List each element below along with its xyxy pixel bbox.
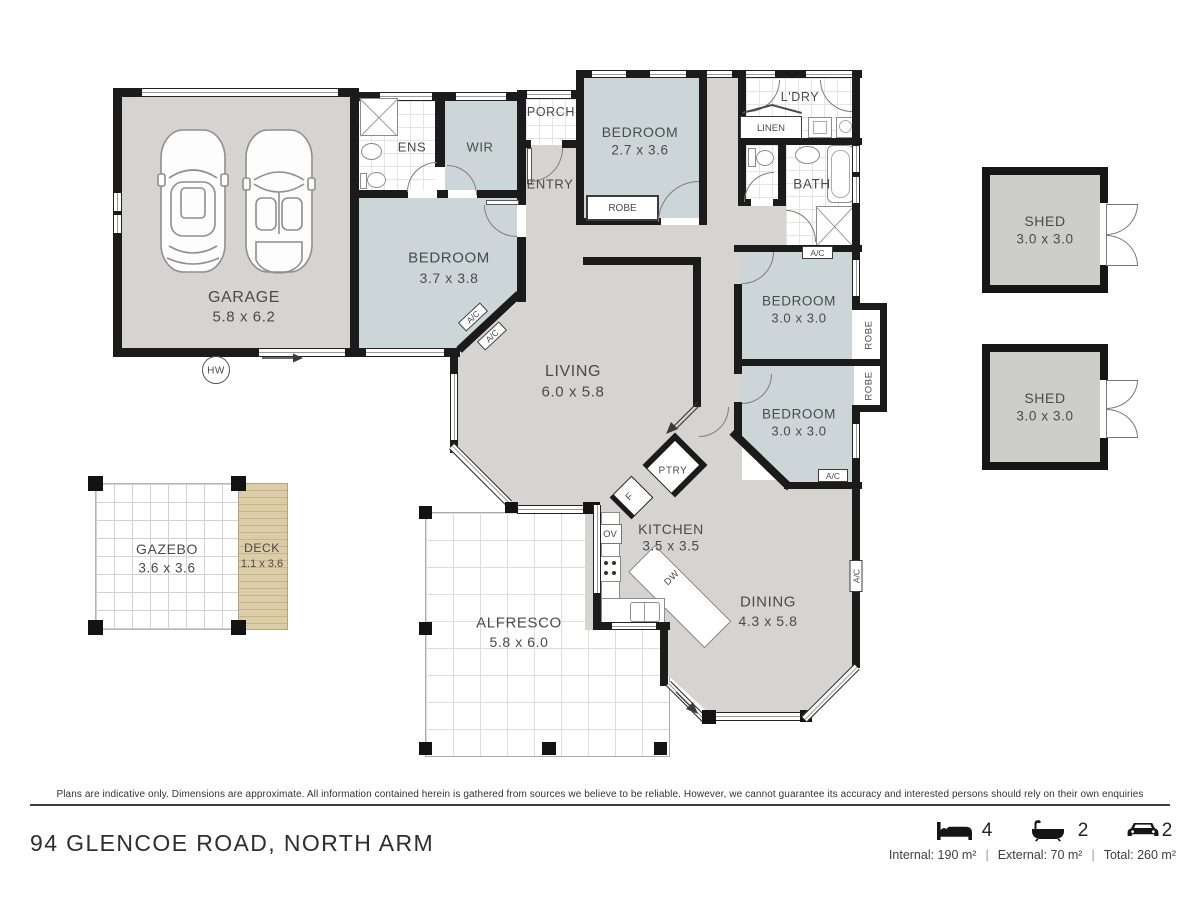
window (650, 70, 686, 78)
shed2-dims: 3.0 x 3.0 (1016, 409, 1073, 424)
burner (604, 561, 608, 565)
window (366, 348, 444, 357)
kitchen-label: KITCHEN (638, 521, 704, 537)
sink-divider (644, 603, 645, 621)
post (702, 710, 716, 724)
window (716, 712, 806, 721)
wall (576, 70, 584, 225)
washing-machine-drum (839, 120, 852, 133)
wall (699, 70, 707, 225)
ens-label: ENS (398, 140, 427, 155)
bed1-label: BEDROOM (408, 250, 490, 267)
linen-cupboard: LINEN (740, 116, 802, 140)
entry-flow-arrow-icon (662, 398, 702, 436)
ac-unit: A/C (802, 246, 833, 259)
window (113, 193, 122, 211)
oven: OV (598, 524, 622, 544)
post (542, 742, 556, 755)
robe-label: ROBE (864, 371, 875, 400)
shed-door (1106, 235, 1138, 266)
ac-label: A/C (810, 248, 824, 258)
ac-unit: A/C (818, 469, 848, 482)
wall (734, 284, 742, 366)
deck-dims: 1.1 x 3.6 (241, 558, 283, 570)
basin (361, 143, 382, 160)
garage-label: GARAGE (208, 289, 280, 307)
deck-label: DECK (244, 541, 280, 555)
separator: | (1082, 848, 1103, 862)
pantry-label: PTRY (659, 466, 688, 477)
window (527, 90, 571, 99)
shed-door (1106, 204, 1138, 235)
cars-count: 2 (1162, 820, 1173, 842)
shed (982, 344, 1108, 470)
shed2-label: SHED (1024, 390, 1065, 406)
window (806, 70, 852, 78)
burner (612, 571, 616, 575)
window (592, 70, 626, 78)
burner (604, 571, 608, 575)
post (419, 506, 432, 519)
address-title: 94 GLENCOE ROAD, NORTH ARM (30, 830, 434, 857)
kitchen-dims: 3.5 x 3.5 (642, 539, 699, 554)
wall (350, 88, 359, 357)
bed4-label: BEDROOM (762, 407, 836, 422)
gazebo-dims: 3.6 x 3.6 (138, 561, 195, 576)
garage-dims: 5.8 x 6.2 (213, 309, 276, 326)
bath-icon (1031, 820, 1064, 841)
shed1-dims: 3.0 x 3.0 (1016, 232, 1073, 247)
window (852, 424, 860, 458)
wall (477, 190, 519, 198)
post (419, 742, 432, 755)
post (231, 476, 246, 491)
deck-floor (238, 483, 288, 630)
wall (435, 93, 445, 167)
window (852, 177, 860, 203)
bed2-label: BEDROOM (602, 124, 679, 140)
wall (778, 144, 786, 206)
bed3-dims: 3.0 x 3.0 (771, 311, 826, 326)
disclaimer-text: Plans are indicative only. Dimensions ar… (30, 789, 1170, 800)
wall (583, 257, 699, 265)
bed4-dims: 3.0 x 3.0 (771, 424, 826, 439)
wall (517, 237, 526, 302)
window (450, 374, 458, 440)
alfresco-dims: 5.8 x 6.0 (489, 634, 548, 650)
porch-label: PORCH (527, 105, 575, 119)
convertible-top-icon (242, 126, 316, 276)
post (505, 502, 518, 513)
linen-label: LINEN (757, 123, 785, 134)
window (113, 215, 122, 233)
ov-label: OV (603, 529, 617, 540)
wall (880, 303, 887, 412)
baths-count: 2 (1078, 820, 1089, 842)
burner (612, 561, 616, 565)
living-label: LIVING (545, 363, 601, 381)
area-summary: Internal: 190 m²|External: 70 m²|Total: … (889, 848, 1176, 862)
window (142, 88, 338, 97)
garage-arrow-icon (260, 352, 304, 364)
dining-label: DINING (740, 594, 796, 611)
post (88, 620, 103, 635)
window (741, 70, 775, 78)
wall (350, 190, 408, 198)
wall (693, 257, 701, 407)
beds-count: 4 (982, 820, 993, 842)
wall (734, 366, 742, 374)
window (852, 146, 860, 172)
ac-unit: A/C (850, 560, 863, 592)
sliding-door (612, 622, 656, 630)
toilet-bowl (756, 150, 774, 166)
wall (784, 482, 862, 489)
bed1-dims: 3.7 x 3.8 (419, 270, 478, 286)
gazebo-label: GAZEBO (136, 541, 198, 557)
window (852, 260, 860, 296)
entry-label: ENTRY (527, 177, 574, 192)
wall (734, 245, 862, 252)
wall (517, 140, 531, 148)
car-top-icon (157, 126, 229, 276)
dining-dims: 4.3 x 5.8 (738, 613, 797, 629)
bath-basin (795, 146, 820, 164)
bed-icon (936, 822, 973, 841)
bath-label: BATH (793, 177, 830, 192)
shed-door (1106, 380, 1138, 409)
shed1-label: SHED (1024, 213, 1065, 229)
robe-label: ROBE (608, 203, 636, 214)
wall (738, 138, 862, 145)
total-area: Total: 260 m² (1104, 848, 1176, 862)
laundry-tub-inner (813, 121, 827, 134)
bed2-dims: 2.7 x 3.6 (611, 143, 668, 158)
post (654, 742, 667, 755)
toilet-tank (360, 173, 367, 189)
post (419, 622, 432, 635)
bathtub-inner (831, 150, 850, 198)
living-dims: 6.0 x 5.8 (542, 384, 605, 401)
window (593, 505, 601, 593)
toilet-bowl (367, 172, 386, 188)
wall (852, 405, 887, 412)
window (456, 92, 506, 101)
robe-label: ROBE (864, 320, 875, 349)
bath-lobby-floor (738, 206, 786, 246)
post (88, 476, 103, 491)
floor-plan: HW GARAGE 5.8 x 6.2 (0, 0, 1200, 900)
wall (734, 359, 860, 366)
window (517, 505, 583, 514)
separator: | (976, 848, 997, 862)
post (231, 620, 246, 635)
robe: ROBE (586, 195, 659, 221)
alfresco-label: ALFRESCO (476, 615, 562, 632)
cooktop (600, 556, 621, 582)
slider-arrow-icon (672, 688, 702, 718)
internal-area: Internal: 190 m² (889, 848, 977, 862)
wall (113, 348, 259, 357)
ac-label: A/C (851, 569, 861, 583)
wir-label: WIR (466, 140, 493, 155)
external-area: External: 70 m² (998, 848, 1083, 862)
wall (852, 359, 887, 366)
ldry-label: L'DRY (781, 90, 820, 104)
toilet-tank (748, 148, 756, 167)
ac-label: A/C (826, 471, 840, 481)
hw-label: HW (207, 366, 225, 377)
divider-line (30, 804, 1170, 806)
shed-door (1106, 409, 1138, 438)
shed (982, 167, 1108, 293)
bed3-label: BEDROOM (762, 294, 836, 309)
car-icon (1127, 821, 1159, 839)
wall (660, 622, 668, 686)
